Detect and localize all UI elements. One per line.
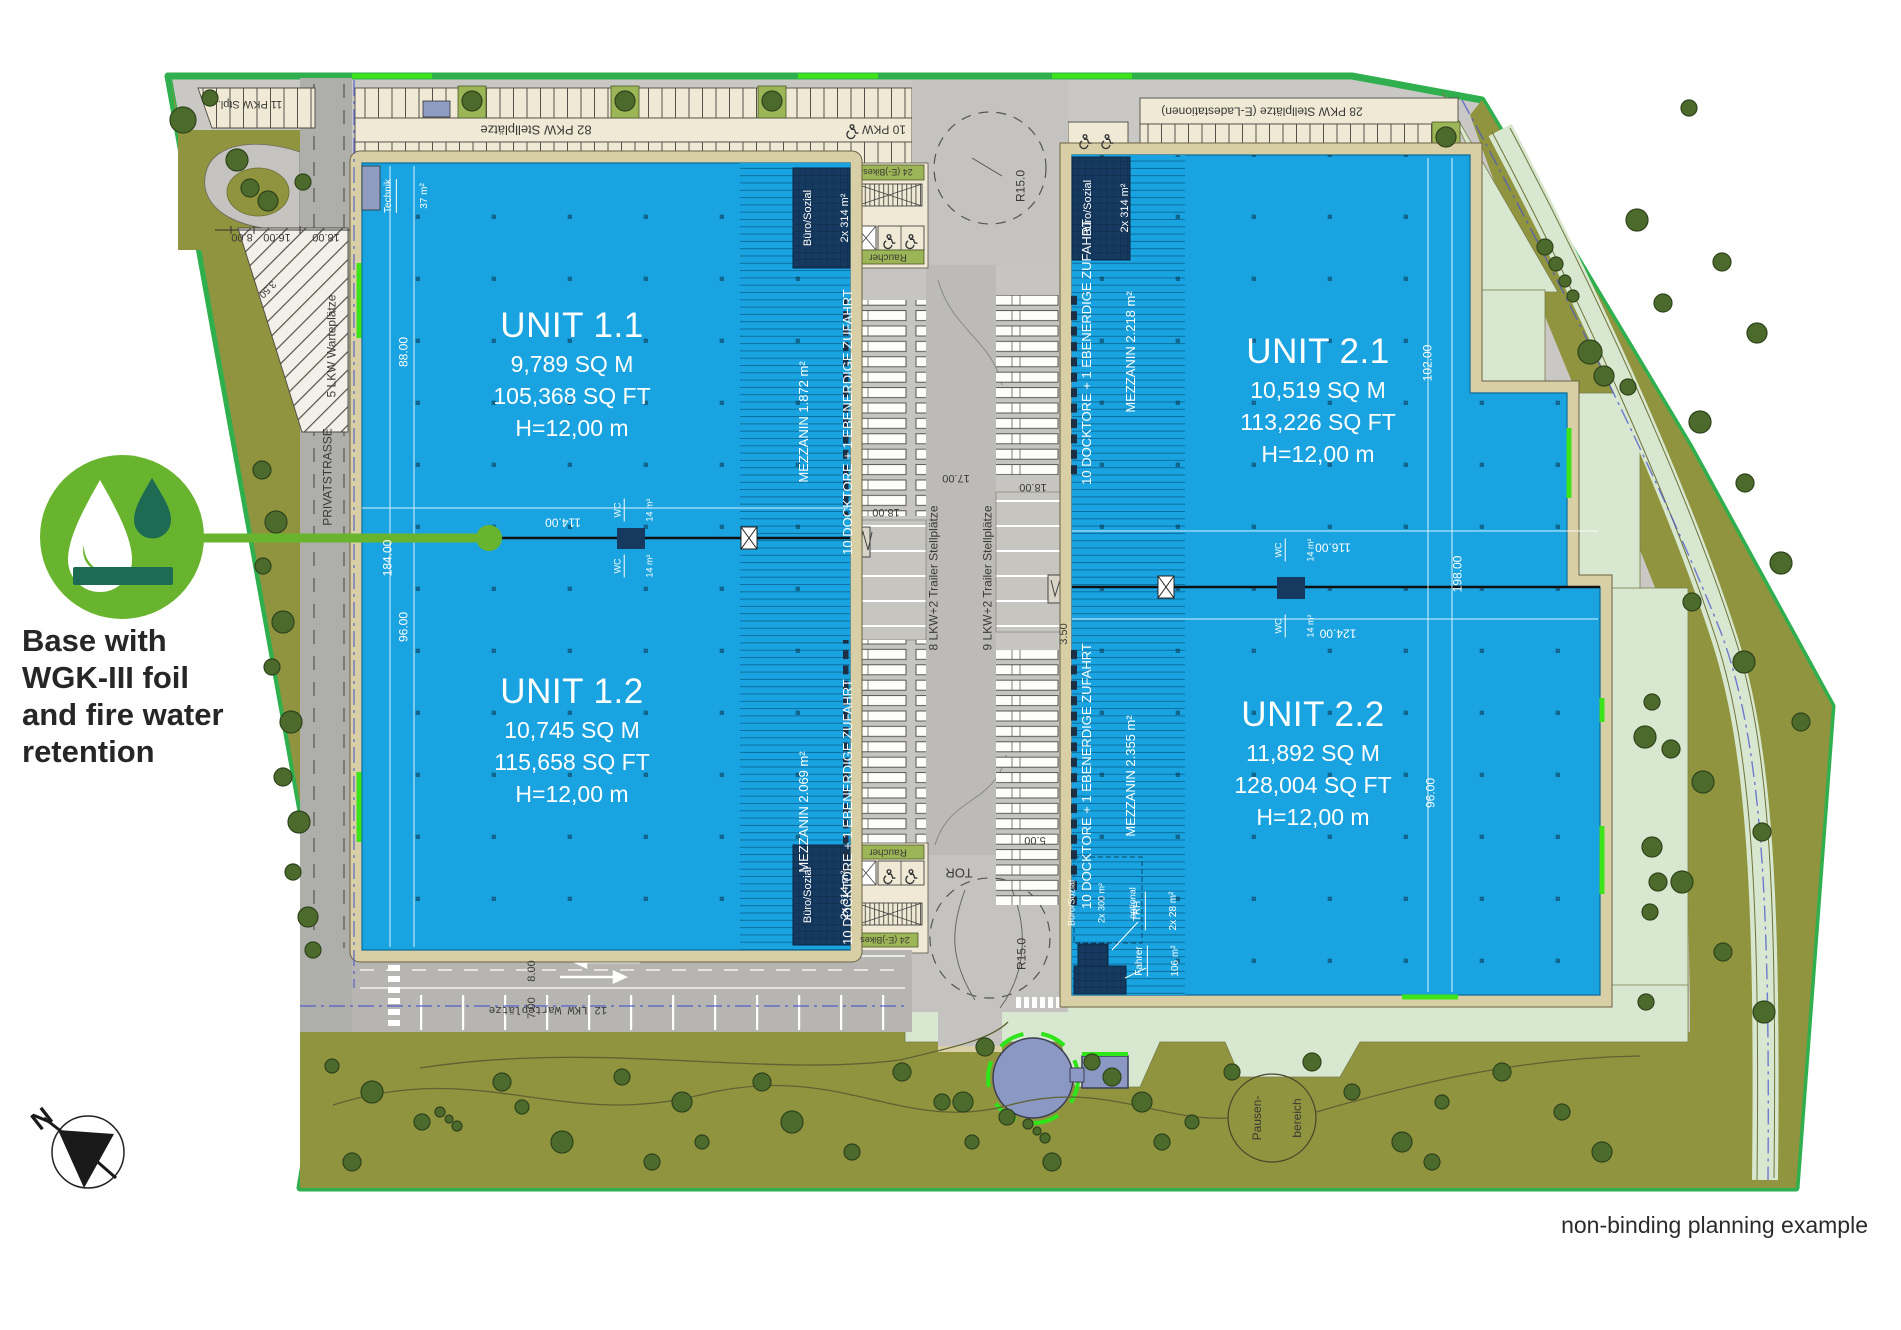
dim-88: 88.00 [397, 337, 410, 367]
buero-unit-1-2: Büro/Sozial 2x 314 m² [777, 867, 863, 923]
parking-10-label: 10 PKW [862, 122, 906, 135]
dim-114: 114.00 [545, 515, 581, 528]
footer-note: non-binding planning example [1561, 1212, 1868, 1239]
trh-label: TRH 2x 28 m² [1110, 892, 1190, 931]
wc-label-2b: WC 14 m² [1254, 614, 1327, 637]
wc-label-1b: WC 14 m² [593, 554, 666, 577]
dim-184: 184.00 [381, 540, 394, 577]
dim-350-east: 3.50 [1058, 623, 1070, 644]
wc-label-1a: WC 14 m² [593, 498, 666, 521]
dim-5: 5.00 [1024, 834, 1045, 846]
lkw12-stalls [400, 995, 905, 1030]
dim-8-south: 8.00 [526, 960, 538, 981]
dim-102: 102.00 [1421, 345, 1434, 382]
raucher-north-label: Raucher [869, 251, 907, 262]
dim-18-east-apron: 18.00 [1019, 481, 1047, 493]
radius-north: R15.0 [1014, 170, 1027, 202]
tor-label: TOR [945, 865, 972, 880]
dim-16: 16.00 [263, 231, 291, 243]
buero-unit-1-1: Büro/Sozial 2x 314 m² [777, 190, 863, 246]
dim-18-nw: 18.00 [312, 231, 340, 243]
compass-icon [44, 1116, 124, 1188]
mezzanin-unit-1-1: MEZZANIN 1.872 m² 10 DOCKTORE + 1 EBENER… [768, 289, 870, 555]
dim-7: 7.00 [526, 997, 538, 1018]
raucher-south-label: Raucher [869, 846, 907, 857]
dim-96-west: 96.00 [397, 612, 410, 642]
dim-198: 198.00 [1451, 556, 1464, 593]
unit-1-2-label: UNIT 1.2 10,745 SQ M 115,658 SQ FT H=12,… [494, 672, 650, 808]
dim-124: 124.00 [1320, 626, 1357, 639]
buero-unit-2-1: Büro/Sozial 2x 314 m² [1057, 180, 1143, 236]
mezzanin-unit-2-2: 10 DOCKTORE + 1 EBENERDIGE ZUFAHRT MEZZA… [1051, 643, 1153, 909]
dim-8-nw: 8.00 [231, 231, 252, 243]
trafo-box [423, 101, 450, 117]
fahrer-label: Fahrer 106 m² [1112, 945, 1192, 976]
parking-28-label: 28 PKW Stellplätze (E-Ladestationen) [1161, 104, 1362, 117]
lkw5-label: 5 LKW Warteplätze [325, 295, 338, 398]
lkw12-label: 12 LKW Warteplätze [489, 1003, 608, 1015]
parking-82-label: 82 PKW Stellplätze [480, 122, 591, 137]
north-roundabout-area [912, 80, 1068, 265]
dim-17: 17.00 [942, 472, 970, 484]
trailer9-label: 9 LKW+2 Trailer Stellplätze [981, 505, 994, 650]
dim-18-west-apron: 18.00 [872, 506, 900, 518]
trailer8-label: 8 LKW+2 Trailer Stellplätze [927, 505, 940, 650]
dim-116: 116.00 [1315, 540, 1351, 553]
radius-south: R15.0 [1015, 938, 1028, 970]
site-plan-drawing [0, 0, 1901, 1330]
dim-96-east: 96.00 [1424, 778, 1437, 808]
privatstrasse-label: PRIVATSTRASSE [321, 428, 334, 526]
parking-11-label: 11 PKW Stpl. [218, 98, 283, 110]
technik-label: Technik 37 m² [361, 179, 441, 213]
callout-text: Base with WGK-III foil and fire water re… [22, 622, 224, 770]
ebikes-north-label: 24 (E-)Bikes [863, 167, 913, 177]
unit-2-1-label: UNIT 2.1 10,519 SQ M 113,226 SQ FT H=12,… [1240, 332, 1396, 468]
pausenbereich-label: Pausen- bereich [1224, 1096, 1318, 1141]
site-plan: UNIT 1.1 9,789 SQ M 105,368 SQ FT H=12,0… [0, 0, 1901, 1330]
mezzanin-unit-2-1: 10 DOCKTORE + 1 EBENERDIGE ZUFAHRT MEZZA… [1051, 219, 1153, 485]
unit-1-1-label: UNIT 1.1 9,789 SQ M 105,368 SQ FT H=12,0… [493, 306, 650, 442]
unit-2-2-label: UNIT 2.2 11,892 SQ M 128,004 SQ FT H=12,… [1234, 695, 1391, 831]
ebikes-south-label: 24 (E-)Bikes [860, 935, 910, 945]
